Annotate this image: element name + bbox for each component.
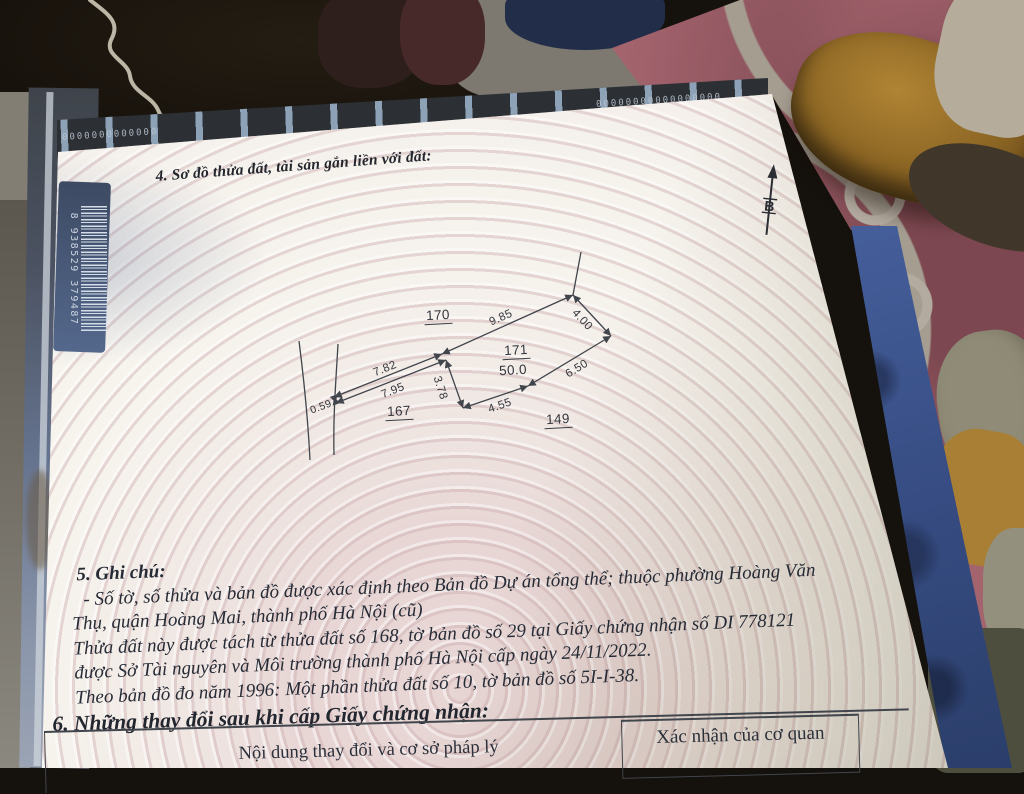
parcel-label-171: 171 — [502, 342, 531, 360]
boundary-extension — [573, 252, 581, 295]
barcode-bars — [81, 206, 107, 332]
parcel-label-149: 149 — [544, 411, 573, 429]
parcel-label-170: 170 — [424, 307, 453, 325]
parcel-label-167: 167 — [385, 403, 414, 421]
table-header-confirmation-cell: Xác nhận của cơ quan — [621, 714, 860, 779]
boundary-curve — [299, 341, 310, 460]
barcode: 8 938529 379487 — [63, 204, 107, 334]
table-header-content: Nội dung thay đổi và cơ sở pháp lý — [45, 734, 621, 770]
plot-diagram — [280, 240, 640, 470]
parcel-area-label: 50.0 — [499, 362, 528, 378]
dark-shoe — [400, 0, 485, 85]
table-header-confirmation: Xác nhận của cơ quan — [622, 722, 858, 750]
photo-of-land-certificate: { "certificate": { "section4_heading": "… — [0, 0, 1024, 768]
north-label: B — [764, 197, 776, 214]
barcode-number: 8 938529 379487 — [68, 204, 79, 334]
